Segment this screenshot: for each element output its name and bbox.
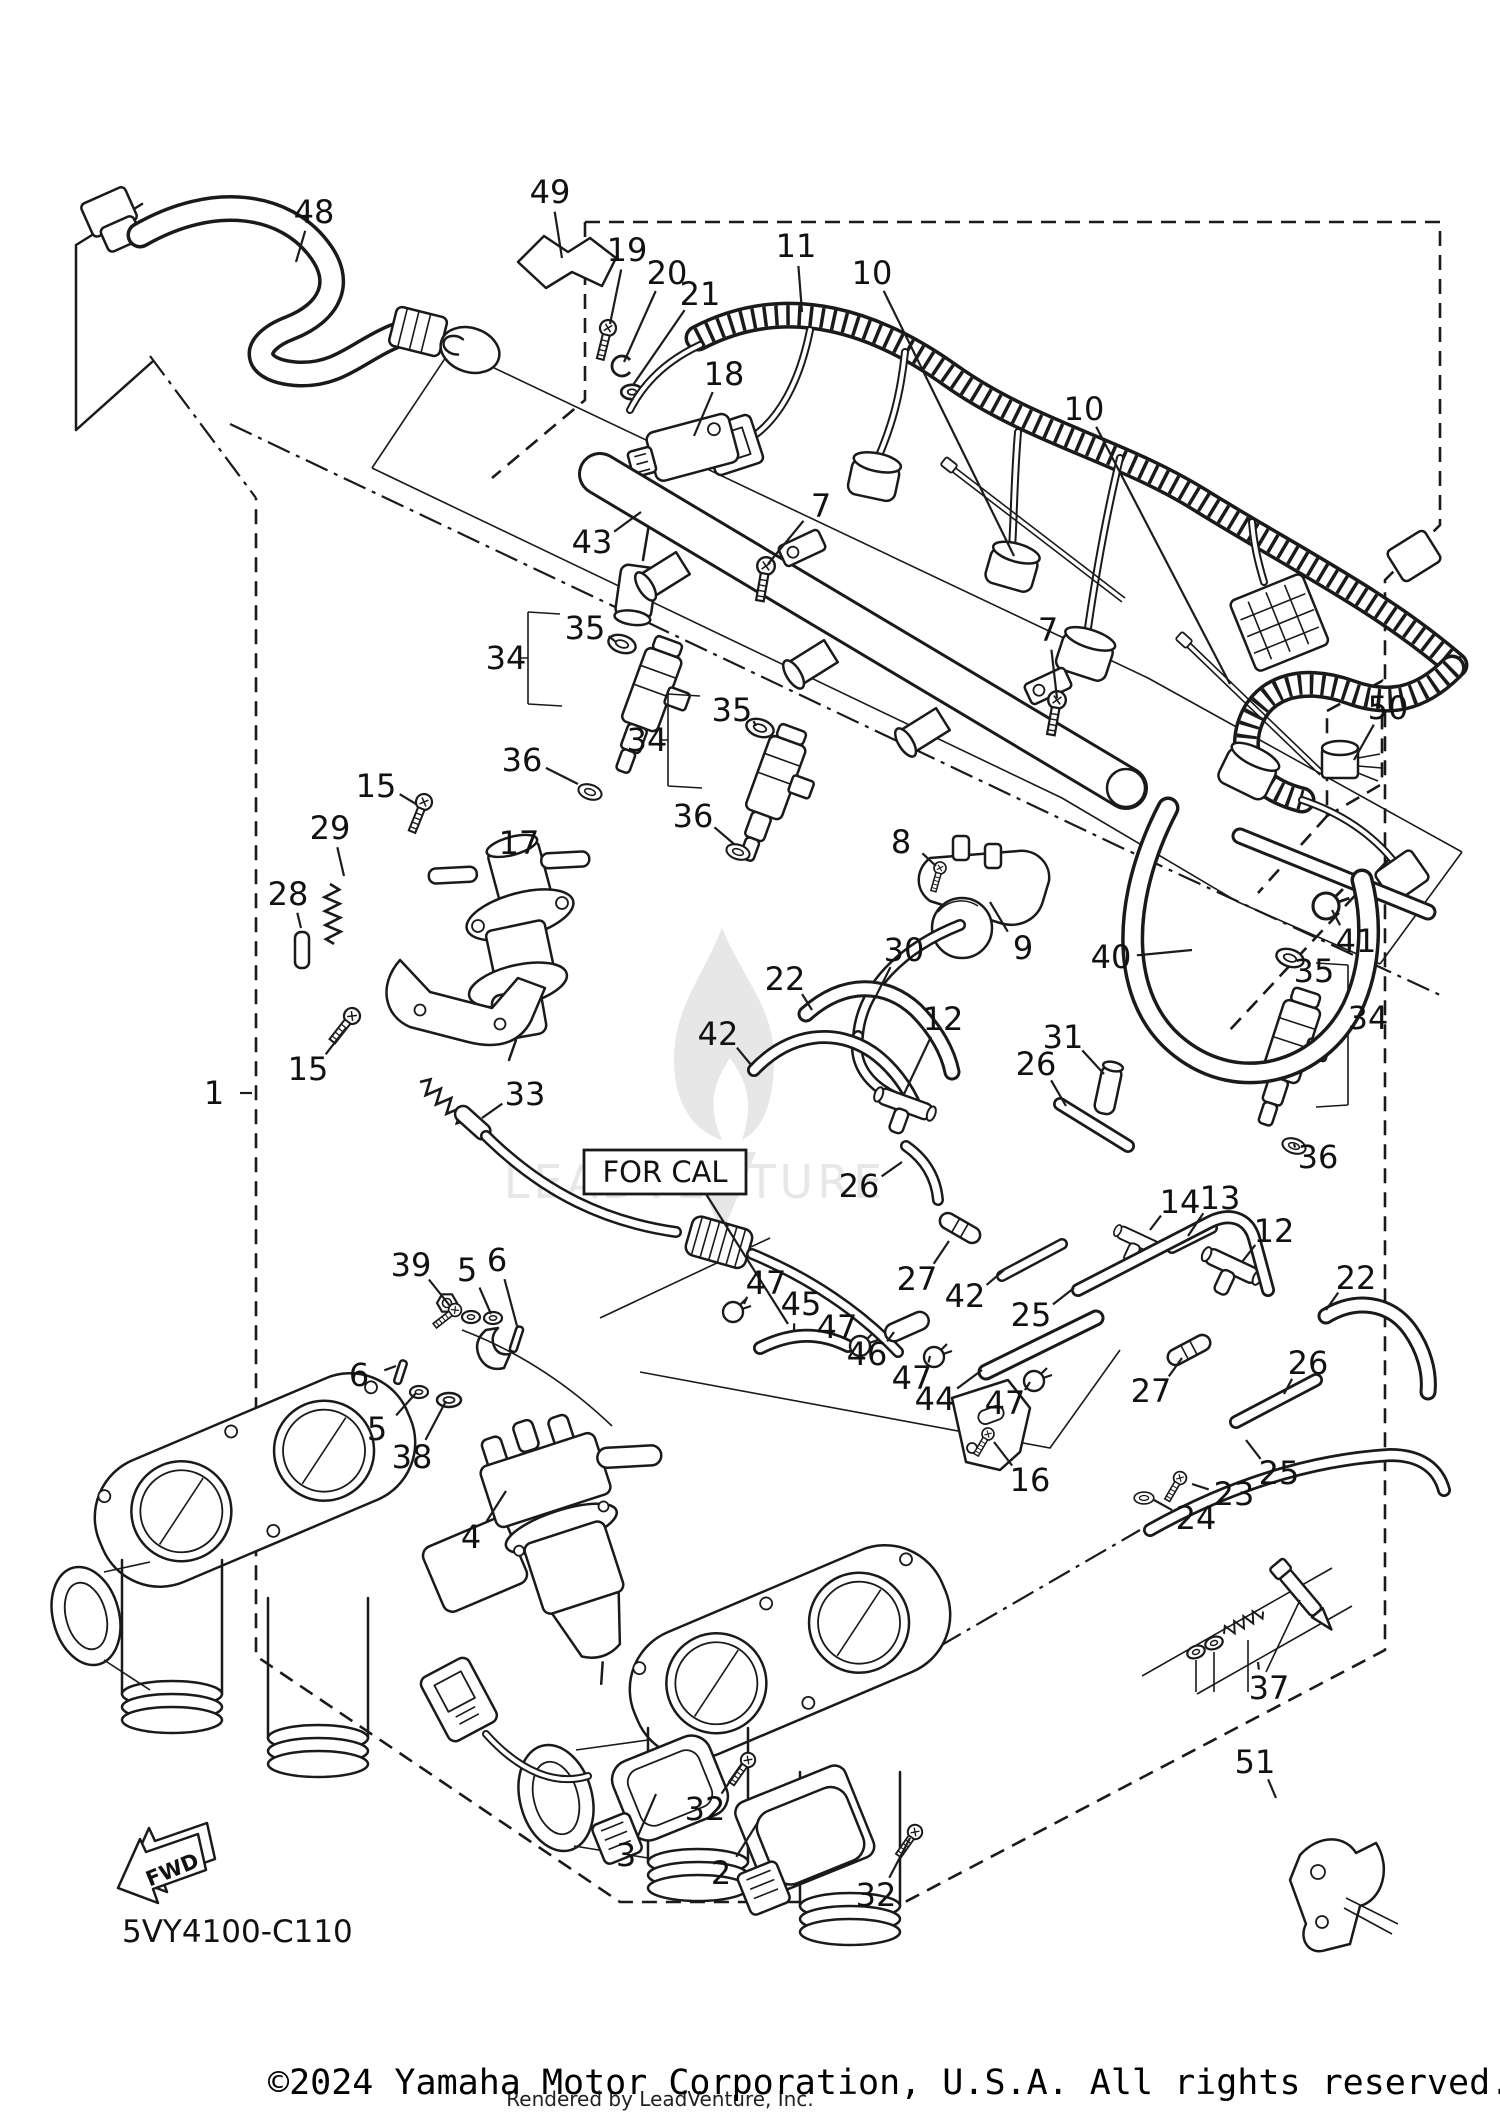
callout-leader-25 xyxy=(1053,1288,1074,1304)
callout-leader-12 xyxy=(904,1037,931,1094)
callout-24: 24 xyxy=(1176,1499,1217,1537)
callout-leader-51 xyxy=(1268,1779,1276,1798)
fuel-injector-34 xyxy=(604,633,705,784)
callout-35: 35 xyxy=(1294,952,1335,990)
callout-12: 12 xyxy=(1254,1212,1295,1250)
callout-35: 35 xyxy=(712,691,753,729)
callout-30: 30 xyxy=(884,931,925,969)
diagram-code: 5VY4100-C110 xyxy=(122,1914,353,1950)
callout-23: 23 xyxy=(1214,1475,1255,1513)
callout-leader-10 xyxy=(884,291,1014,556)
callout-29: 29 xyxy=(310,809,351,847)
callout-6: 6 xyxy=(349,1356,369,1394)
pin-6 xyxy=(393,1360,407,1385)
coil-connector-icon xyxy=(983,537,1042,593)
screw-19 xyxy=(592,318,617,361)
callout-leader-36 xyxy=(715,827,735,844)
callout-leader-20 xyxy=(624,291,656,362)
copyright-text: ©2024 Yamaha Motor Corporation, U.S.A. A… xyxy=(268,2063,1500,2103)
callout-17: 17 xyxy=(499,824,540,862)
callout-41: 41 xyxy=(1336,922,1377,960)
oring-35 xyxy=(606,632,638,657)
callout-leader-23 xyxy=(1192,1484,1209,1489)
callout-31: 31 xyxy=(1043,1018,1084,1056)
callout-45: 45 xyxy=(781,1285,822,1323)
callout-10: 10 xyxy=(852,254,893,292)
harness-clamp-49 xyxy=(518,236,616,288)
callout-leader-36 xyxy=(1294,1144,1295,1148)
callout-27: 27 xyxy=(1131,1372,1172,1410)
callout-36: 36 xyxy=(502,741,543,779)
callout-44: 44 xyxy=(915,1380,956,1418)
callout-leader-50 xyxy=(1354,725,1374,760)
bracket-51 xyxy=(1290,1839,1398,1951)
washer-24 xyxy=(1134,1492,1154,1504)
callout-14: 14 xyxy=(1160,1183,1201,1221)
callout-leader-6 xyxy=(384,1366,396,1370)
callout-27: 27 xyxy=(897,1260,938,1298)
callout-26: 26 xyxy=(1288,1344,1329,1382)
callout-leader-29 xyxy=(337,847,344,876)
callout-25: 25 xyxy=(1011,1296,1052,1334)
coil-connector-icon xyxy=(846,449,902,503)
callout-leader-36 xyxy=(546,768,578,784)
callout-28: 28 xyxy=(268,875,309,913)
tee-joint-12 xyxy=(865,1086,938,1144)
callout-26: 26 xyxy=(839,1167,880,1205)
callout-5: 5 xyxy=(457,1251,477,1289)
callout-3: 3 xyxy=(616,1836,636,1874)
callout-leader-38 xyxy=(426,1401,447,1440)
callout-1: 1 xyxy=(204,1074,224,1112)
callout-47: 47 xyxy=(985,1384,1026,1422)
callout-leader-5 xyxy=(480,1288,492,1314)
callout-40: 40 xyxy=(1091,938,1132,976)
callout-11: 11 xyxy=(776,227,817,265)
callout-36: 36 xyxy=(1298,1138,1339,1176)
clip-20 xyxy=(612,356,630,376)
callout-10: 10 xyxy=(1064,390,1105,428)
callout-51: 51 xyxy=(1235,1743,1276,1781)
callout-2: 2 xyxy=(711,1854,731,1892)
callout-leader-15 xyxy=(400,794,416,804)
callout-35: 35 xyxy=(565,609,606,647)
callout-7: 7 xyxy=(1038,611,1058,649)
callout-16: 16 xyxy=(1010,1461,1051,1499)
exploded-parts-diagram: LEADVENTURE xyxy=(0,0,1500,2115)
callout-34: 34 xyxy=(1348,999,1389,1037)
callout-5: 5 xyxy=(367,1410,387,1448)
callout-leader-28 xyxy=(297,913,301,928)
callout-49: 49 xyxy=(530,173,571,211)
hose-clamp-41 xyxy=(1313,889,1349,919)
callout-22: 22 xyxy=(765,960,806,998)
callout-22: 22 xyxy=(1336,1259,1377,1297)
callout-39: 39 xyxy=(391,1246,432,1284)
callout-13: 13 xyxy=(1200,1179,1241,1217)
callout-34: 34 xyxy=(486,639,527,677)
pin-28 xyxy=(295,932,309,968)
callout-37: 37 xyxy=(1249,1669,1290,1707)
linkage-hardware xyxy=(393,1294,612,1426)
callout-21: 21 xyxy=(680,275,721,313)
callout-12: 12 xyxy=(923,1000,964,1038)
callout-38: 38 xyxy=(392,1438,433,1476)
callout-9: 9 xyxy=(1013,929,1033,967)
sensor-50 xyxy=(1322,741,1382,781)
callout-4: 4 xyxy=(461,1518,481,1556)
callout-50: 50 xyxy=(1368,689,1409,727)
callout-7: 7 xyxy=(811,487,831,525)
callout-32: 32 xyxy=(685,1790,726,1828)
parts-diagram-page: LEADVENTURE xyxy=(0,0,1500,2115)
callout-36: 36 xyxy=(673,797,714,835)
callout-15: 15 xyxy=(356,767,397,805)
callout-leader-44 xyxy=(957,1370,982,1389)
callout-leader-40 xyxy=(1137,950,1192,955)
callout-33: 33 xyxy=(505,1075,546,1113)
main-connector-icon xyxy=(1229,573,1330,673)
callout-leader-31 xyxy=(1082,1050,1104,1074)
callout-8: 8 xyxy=(891,823,911,861)
callout-leader-33 xyxy=(482,1104,502,1118)
callout-15: 15 xyxy=(288,1050,329,1088)
fuel-hose-48 xyxy=(80,186,506,380)
oring-36 xyxy=(576,781,603,802)
callout-25: 25 xyxy=(1259,1454,1300,1492)
callout-34: 34 xyxy=(627,721,668,759)
for-cal-label: FOR CAL xyxy=(602,1155,727,1189)
callout-32: 32 xyxy=(856,1876,897,1914)
callout-43: 43 xyxy=(572,523,613,561)
pin-6 xyxy=(509,1326,524,1353)
callout-42: 42 xyxy=(945,1277,986,1315)
callout-42: 42 xyxy=(698,1015,739,1053)
callout-46: 46 xyxy=(847,1335,888,1373)
callout-18: 18 xyxy=(704,355,745,393)
callout-leader-6 xyxy=(505,1279,518,1326)
callout-48: 48 xyxy=(294,193,335,231)
callout-19: 19 xyxy=(607,231,648,269)
callout-6: 6 xyxy=(487,1241,507,1279)
fwd-arrow: FWD xyxy=(118,1823,215,1903)
spring-29 xyxy=(324,884,341,944)
callout-leader-19 xyxy=(610,270,621,325)
